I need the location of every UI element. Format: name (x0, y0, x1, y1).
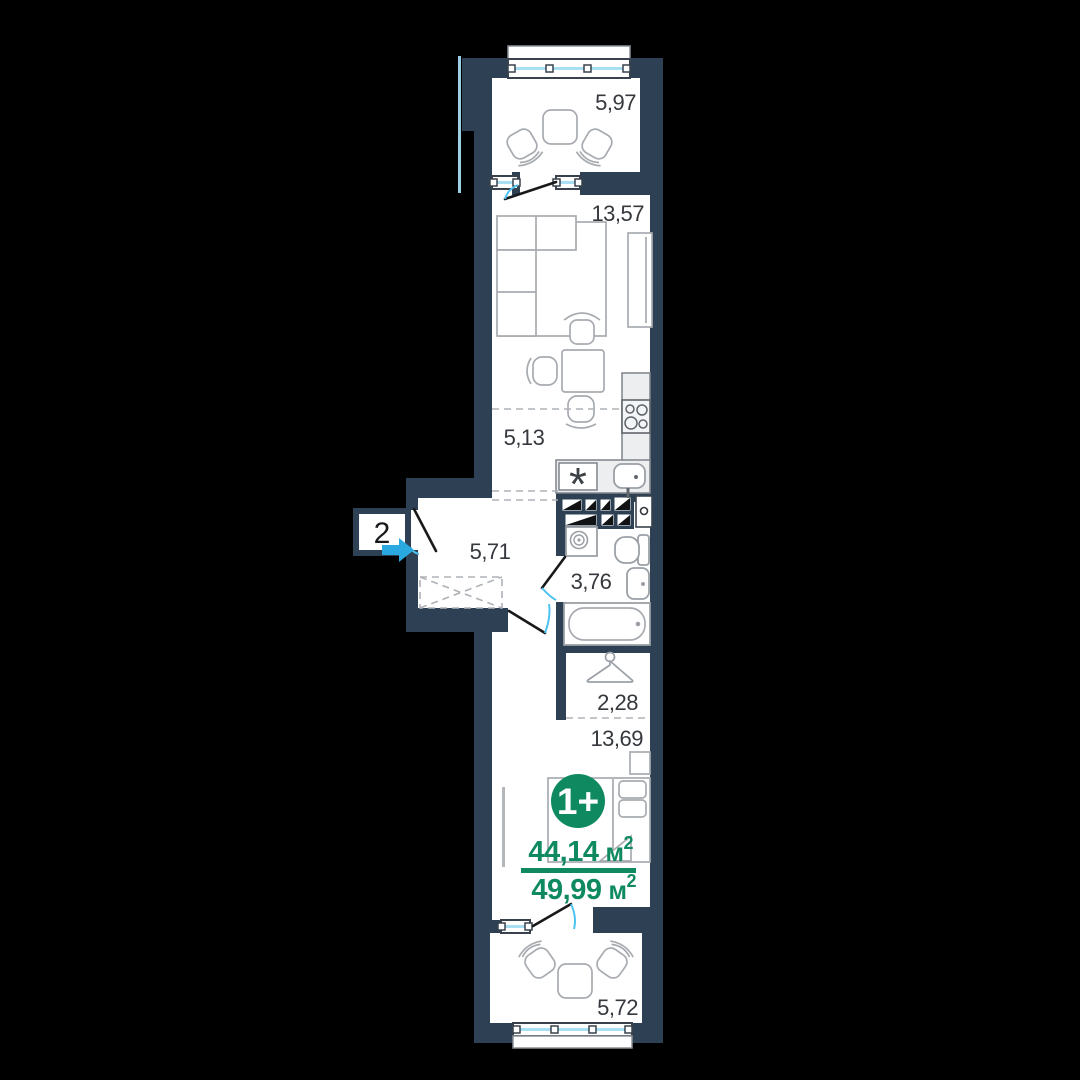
area-divider-line (521, 868, 636, 873)
closet-area-label: 2,28 (597, 690, 638, 715)
floor-plan-canvas: * (0, 0, 1080, 1080)
washing-machine-icon (566, 527, 597, 556)
kitchen-area-label: 5,13 (504, 425, 545, 450)
unit-type-label: 1+ (557, 781, 599, 822)
balcony-bottom-outer-glazing (513, 1036, 632, 1048)
dining-table-icon (562, 350, 604, 392)
toilet-icon (615, 535, 649, 565)
total-area-value: 49,99м2 (531, 871, 636, 906)
balcony-table-icon (543, 110, 577, 144)
balcony-top-outer-glazing (508, 46, 630, 59)
washbasin-icon (627, 568, 649, 599)
radiator-icon (502, 787, 505, 867)
bedroom-area-label: 13,69 (590, 726, 643, 751)
balcony-top-area-label: 5,97 (595, 90, 636, 115)
living-room-area-label: 13,57 (591, 201, 644, 226)
balcony-glazing-edge (458, 56, 461, 193)
balcony-bottom-area-label: 5,72 (597, 995, 638, 1020)
floor-plan: * (0, 0, 1080, 1080)
hallway-area-label: 5,71 (470, 539, 511, 564)
bathtub-icon (564, 603, 650, 645)
wardrobe-icon (628, 233, 652, 327)
living-area-value: 44,14м2 (528, 833, 633, 868)
nightstand-icon (630, 752, 650, 774)
entrance-marker: 2 (356, 511, 414, 562)
bathroom-area-label: 3,76 (571, 569, 612, 594)
svg-text:*: * (569, 458, 587, 510)
stove-icon (622, 400, 650, 433)
balcony-table-icon (558, 964, 592, 998)
